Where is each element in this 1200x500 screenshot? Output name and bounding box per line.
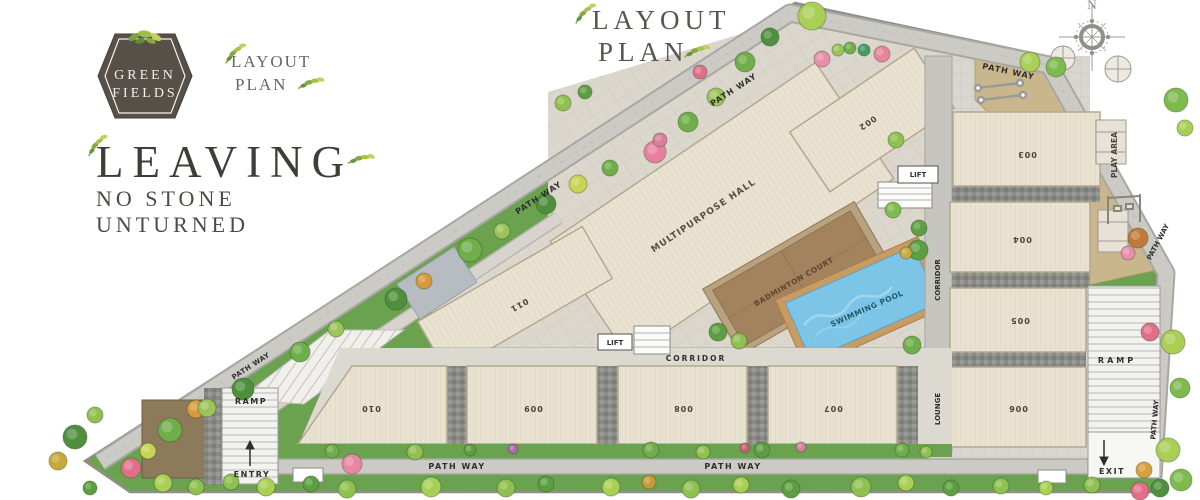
layout-plan-page: N PATH WAY PATH WAY PATH WAY PATH WAY PA…	[0, 0, 1200, 500]
logo-name-line2: FIELDS	[112, 86, 177, 101]
pathway-label: PATH WAY	[428, 462, 485, 471]
building-003	[953, 112, 1100, 186]
tagline-line2: NO STONE	[96, 186, 353, 212]
stone-divider	[747, 366, 768, 444]
stone-divider	[952, 352, 1086, 367]
bottom-grass-strip	[298, 444, 952, 457]
stone-divider	[952, 272, 1090, 288]
lift-label: LIFT	[607, 339, 624, 347]
building-003-label: 003	[1017, 150, 1037, 159]
exit-gate	[1038, 470, 1066, 483]
play-area-label: PLAY AREA	[1110, 132, 1119, 178]
stone-divider	[597, 366, 618, 444]
building-006-label: 006	[1008, 404, 1028, 413]
pathway-label: PATH WAY	[704, 462, 761, 471]
building-010-label: 010	[361, 404, 381, 413]
corridor-label: CORRIDOR	[666, 354, 727, 363]
lift-label: LIFT	[910, 171, 927, 179]
stone-divider	[952, 186, 1100, 202]
bottom-pathway	[278, 459, 1088, 474]
tagline-line1: LEAVING	[96, 138, 353, 186]
page-title-line2: PLAN	[598, 36, 731, 68]
leaf-sprig-icon	[570, 0, 599, 26]
ramp-label: RAMP	[235, 397, 267, 406]
ramp-label: RAMP	[1098, 356, 1136, 365]
logo-name-line1: GREEN	[114, 68, 176, 83]
corridor-label: CORRIDOR	[934, 259, 942, 301]
tagline-line3: UNTURNED	[96, 212, 353, 238]
building-007-label: 007	[823, 404, 843, 413]
stone-divider	[447, 366, 467, 444]
green-fields-logo: GREEN FIELDS	[96, 30, 194, 122]
entry-label: ENTRY	[234, 470, 271, 479]
building-004-label: 004	[1012, 235, 1032, 244]
compass-north-label: N	[1087, 0, 1097, 12]
building-008-label: 008	[673, 404, 693, 413]
tagline: LEAVING NO STONE UNTURNED	[96, 138, 353, 238]
building-009-label: 009	[523, 404, 543, 413]
page-title: LAYOUT PLAN	[592, 4, 731, 68]
building-005-label: 005	[1010, 316, 1030, 325]
page-title-line1: LAYOUT	[592, 4, 731, 36]
leaf-sprig-icon	[220, 40, 249, 66]
lounge-label: LOUNGE	[934, 393, 942, 425]
exit-label: EXIT	[1099, 467, 1125, 476]
stone-divider	[897, 366, 918, 444]
